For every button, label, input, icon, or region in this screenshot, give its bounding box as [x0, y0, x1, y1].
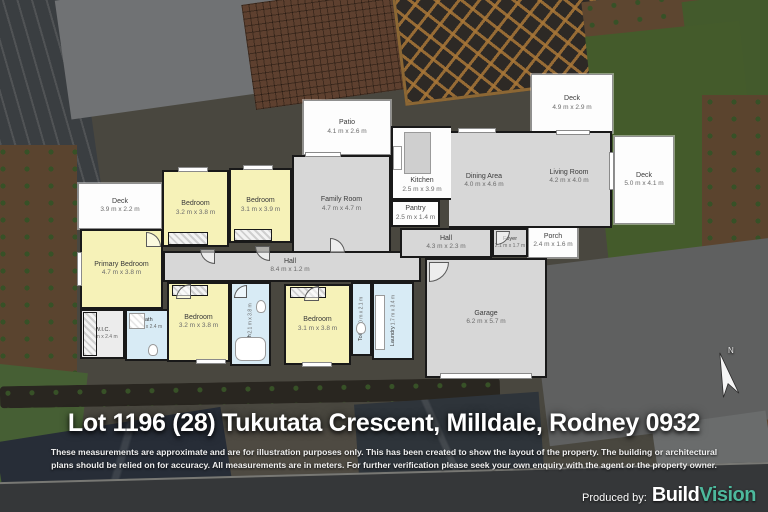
producer-credit: Produced by: BuildVision [582, 484, 756, 507]
north-arrow-icon: N [706, 346, 746, 404]
room-deck-left: Deck 3.9 m x 2.2 m [78, 183, 162, 229]
room-patio: Patio 4.1 m x 2.6 m [303, 100, 391, 155]
room-porch: Porch 2.4 m x 1.6 m [528, 224, 578, 258]
room-pantry: Pantry 2.5 m x 1.4 m [391, 200, 440, 227]
kitchen-counter [393, 146, 402, 170]
toilet-wc [356, 322, 366, 334]
disclaimer-line-2: plans should be relied on for accuracy. … [0, 459, 768, 472]
produced-by-label: Produced by: [582, 492, 647, 504]
shower-bath-small [129, 313, 145, 329]
kitchen-island [404, 132, 431, 174]
disclaimer-text: These measurements are approximate and a… [0, 446, 768, 473]
laundry-bench [375, 295, 385, 350]
garage-door-opening [440, 373, 532, 379]
room-garage: Garage 6.2 m x 5.7 m [425, 258, 547, 378]
bathtub [235, 337, 266, 361]
window [609, 152, 614, 190]
toilet-bath-main [256, 300, 266, 313]
window [178, 167, 208, 172]
north-label: N [728, 346, 734, 355]
window [302, 362, 332, 367]
toilet-bath-small [148, 344, 158, 356]
room-dining-area: Dining Area 4.0 m x 4.6 m [455, 172, 513, 190]
wardrobe-bed-top-1 [168, 232, 208, 245]
room-deck-right: Deck 5.0 m x 4.1 m [614, 136, 674, 224]
buildvision-logo: BuildVision [652, 484, 756, 507]
page-title: Lot 1196 (28) Tukutata Crescent, Milldal… [0, 409, 768, 438]
window [196, 359, 226, 364]
room-family-room: Family Room 4.7 m x 4.7 m [292, 155, 391, 254]
window [556, 130, 590, 135]
wardrobe-bed-top-2 [234, 229, 272, 241]
north-needle [706, 346, 746, 404]
room-toilet: Toilet 1.0 m x 2.1 m [351, 282, 372, 356]
room-living-room: Living Room 4.2 m x 4.0 m [538, 168, 600, 186]
laundry-label: Laundry 1.7 m x 3.4 m [390, 295, 397, 346]
floor-plan-image: Deck 3.9 m x 2.2 m Patio 4.1 m x 2.6 m D… [0, 0, 768, 512]
room-hall-central: Hall 4.3 m x 2.3 m [400, 228, 492, 258]
toilet-label: Toilet 1.0 m x 2.1 m [358, 297, 365, 341]
window [243, 165, 273, 170]
disclaimer-line-1: These measurements are approximate and a… [0, 446, 768, 459]
room-deck-top: Deck 4.9 m x 2.9 m [531, 74, 613, 133]
window [305, 152, 341, 157]
window [77, 252, 82, 286]
wic-wardrobe [83, 312, 97, 356]
window [458, 128, 496, 133]
